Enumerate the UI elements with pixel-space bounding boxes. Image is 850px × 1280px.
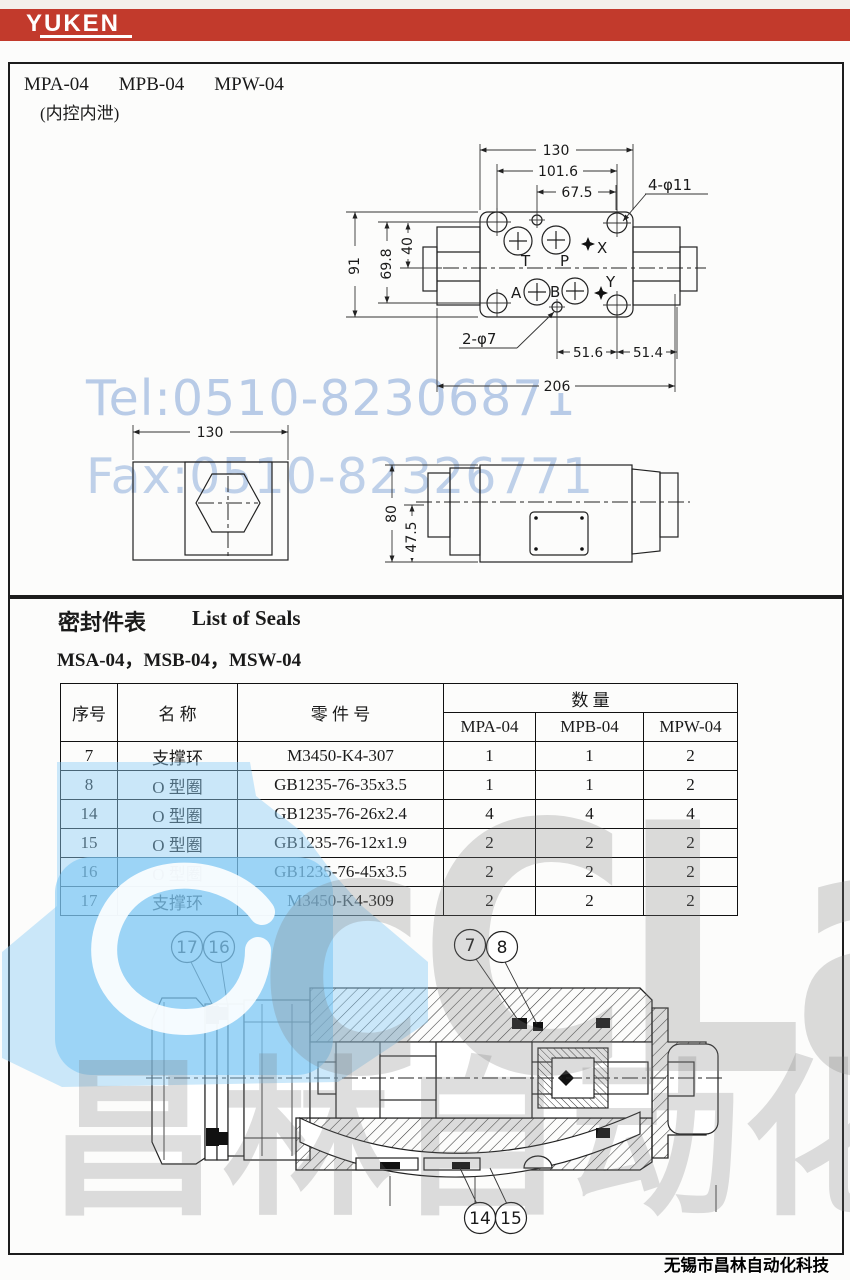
model-mpa04: MPA-04 xyxy=(24,74,89,95)
table-cell: O 型圈 xyxy=(118,800,238,829)
table-cell: 1 xyxy=(536,771,644,800)
model-subtitle: (内控内泄) xyxy=(40,99,119,124)
table-cell: 2 xyxy=(536,887,644,916)
table-cell: O 型圈 xyxy=(118,771,238,800)
col-header-qty: 数 量 xyxy=(444,684,738,713)
dim-101-6: 101.6 xyxy=(538,164,578,180)
seals-title-en: List of Seals xyxy=(192,606,301,631)
col-header-seq: 序号 xyxy=(61,684,118,742)
plan-view-drawing: T P X A B Y 130 101.6 67.5 xyxy=(330,135,810,403)
seals-title-cn: 密封件表 xyxy=(58,605,146,637)
side-view-drawing: 80 47.5 xyxy=(382,438,694,573)
dim-4-phi11: 4-φ11 xyxy=(648,176,692,194)
table-cell: 2 xyxy=(644,771,738,800)
dim-206: 206 xyxy=(544,379,571,395)
table-row: 16O 型圈GB1235-76-45x3.5222 xyxy=(61,858,738,887)
valve-cross-section: 17 16 7 8 14 15 xyxy=(146,930,722,1234)
dim-69-8: 69.8 xyxy=(379,248,395,279)
table-cell: GB1235-76-35x3.5 xyxy=(238,771,444,800)
port-label-t: T xyxy=(520,252,531,270)
callout-8: 8 xyxy=(497,938,508,958)
ports: T P X A B Y xyxy=(504,226,616,305)
seals-table: 序号 名 称 零 件 号 数 量 MPA-04 MPB-04 MPW-04 7支… xyxy=(60,683,738,916)
port-label-p: P xyxy=(560,252,569,270)
dim-80: 80 xyxy=(384,505,400,523)
dim-51-4: 51.4 xyxy=(633,345,663,361)
dim-51-6: 51.6 xyxy=(573,345,603,361)
table-header-row-1: 序号 名 称 零 件 号 数 量 xyxy=(61,684,738,713)
table-cell: 15 xyxy=(61,829,118,858)
model-mpb04: MPB-04 xyxy=(119,74,184,95)
table-row: 15O 型圈GB1235-76-12x1.9222 xyxy=(61,829,738,858)
port-label-b: B xyxy=(550,283,560,301)
table-cell: O 型圈 xyxy=(118,858,238,887)
table-cell: M3450-K4-309 xyxy=(238,887,444,916)
table-cell: 2 xyxy=(644,858,738,887)
yuken-logo-underline xyxy=(40,35,132,38)
dim-40: 40 xyxy=(400,237,416,255)
col-header-name: 名 称 xyxy=(118,684,238,742)
table-row: 7支撑环M3450-K4-307112 xyxy=(61,742,738,771)
port-label-a: A xyxy=(511,284,522,302)
table-cell: 2 xyxy=(536,829,644,858)
footer-company: 无锡市昌林自动化科技 xyxy=(664,1252,829,1276)
table-row: 17支撑环M3450-K4-309222 xyxy=(61,887,738,916)
end-view-drawing: 130 xyxy=(120,418,310,573)
callout-14: 14 xyxy=(469,1209,491,1229)
bolt-holes xyxy=(483,208,631,319)
table-cell: 4 xyxy=(536,800,644,829)
table-cell: O 型圈 xyxy=(118,829,238,858)
dim-91: 91 xyxy=(347,257,363,275)
table-cell: 2 xyxy=(444,858,536,887)
table-cell: 2 xyxy=(444,829,536,858)
model-names: MPA-04MPB-04MPW-04 xyxy=(24,74,314,96)
table-cell: 4 xyxy=(644,800,738,829)
table-cell: 1 xyxy=(444,771,536,800)
callout-16: 16 xyxy=(208,938,230,958)
datasheet-page: YUKEN MPA-04MPB-04MPW-04 (内控内泄) xyxy=(0,0,850,1280)
dim-47-5: 47.5 xyxy=(404,521,420,552)
dim-130-top: 130 xyxy=(543,143,570,159)
table-cell: M3450-K4-307 xyxy=(238,742,444,771)
port-label-x: X xyxy=(597,239,607,257)
table-cell: 14 xyxy=(61,800,118,829)
table-cell: GB1235-76-12x1.9 xyxy=(238,829,444,858)
table-cell: GB1235-76-45x3.5 xyxy=(238,858,444,887)
model-mpw04: MPW-04 xyxy=(214,74,284,95)
col-header-part: 零 件 号 xyxy=(238,684,444,742)
dim-130-end: 130 xyxy=(197,425,224,441)
port-label-y: Y xyxy=(605,273,616,291)
yuken-logo: YUKEN xyxy=(26,12,120,36)
table-cell: 支撑环 xyxy=(118,887,238,916)
plan-view-body: T P X A B Y 130 101.6 67.5 xyxy=(346,142,708,395)
col-header-mpb04: MPB-04 xyxy=(536,713,644,742)
table-cell: 支撑环 xyxy=(118,742,238,771)
table-cell: 17 xyxy=(61,887,118,916)
dim-2-phi7: 2-φ7 xyxy=(462,330,496,348)
callout-7: 7 xyxy=(465,936,476,956)
table-row: 8O 型圈GB1235-76-35x3.5112 xyxy=(61,771,738,800)
table-cell: 1 xyxy=(444,742,536,771)
cross-section-drawing: 17 16 7 8 14 15 xyxy=(140,925,730,1237)
table-row: 14O 型圈GB1235-76-26x2.4444 xyxy=(61,800,738,829)
table-cell: 4 xyxy=(444,800,536,829)
side-view-body: 80 47.5 xyxy=(384,465,690,562)
col-header-mpw04: MPW-04 xyxy=(644,713,738,742)
table-cell: GB1235-76-26x2.4 xyxy=(238,800,444,829)
table-cell: 2 xyxy=(444,887,536,916)
table-cell: 2 xyxy=(536,858,644,887)
table-cell: 7 xyxy=(61,742,118,771)
table-cell: 8 xyxy=(61,771,118,800)
end-view-body: 130 xyxy=(133,424,288,560)
page-top-strip xyxy=(0,0,850,9)
callout-17: 17 xyxy=(176,938,198,958)
table-cell: 2 xyxy=(644,742,738,771)
table-cell: 2 xyxy=(644,829,738,858)
col-header-mpa04: MPA-04 xyxy=(444,713,536,742)
table-cell: 2 xyxy=(644,887,738,916)
dim-67-5: 67.5 xyxy=(561,185,592,201)
callout-15: 15 xyxy=(500,1209,522,1229)
table-cell: 16 xyxy=(61,858,118,887)
table-cell: 1 xyxy=(536,742,644,771)
seals-model-names: MSA-04，MSB-04，MSW-04 xyxy=(57,645,301,672)
